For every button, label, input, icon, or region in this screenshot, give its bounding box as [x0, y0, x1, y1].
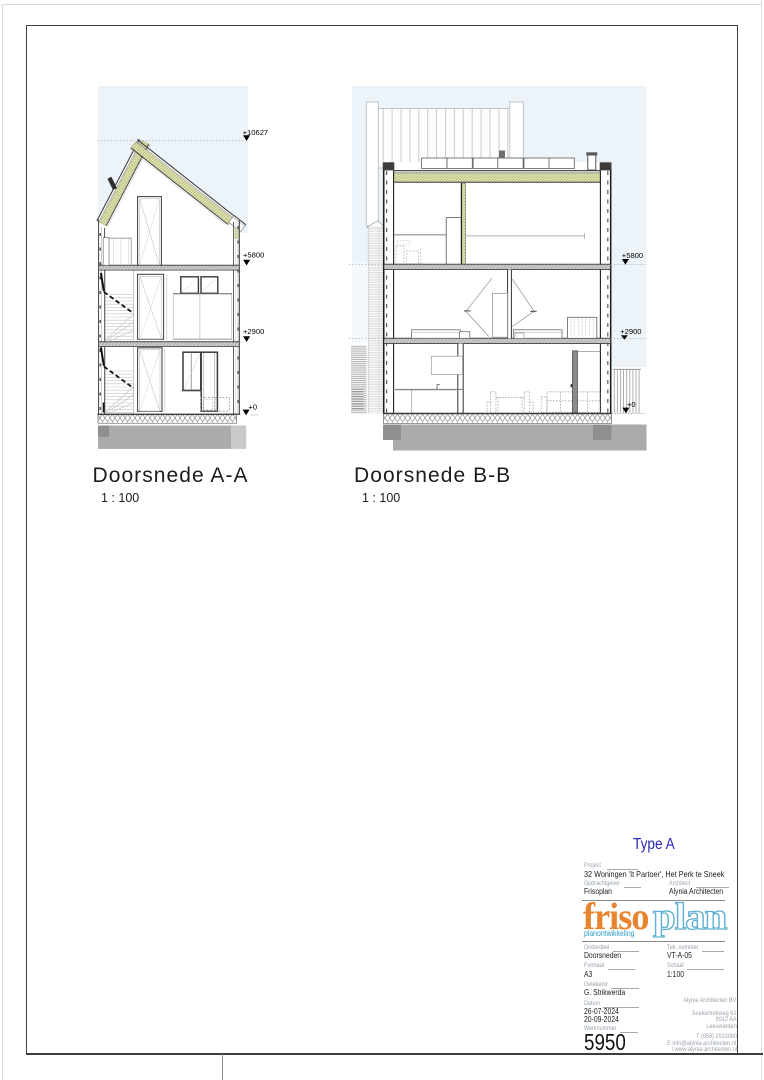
svg-text:+10627: +10627	[243, 128, 269, 137]
svg-text:+0: +0	[248, 402, 257, 411]
svg-text:+5800: +5800	[622, 251, 643, 260]
svg-text:+2900: +2900	[620, 327, 641, 336]
svg-text:+0: +0	[627, 400, 636, 409]
svg-text:+5800: +5800	[243, 250, 264, 259]
svg-text:+2900: +2900	[243, 327, 264, 336]
